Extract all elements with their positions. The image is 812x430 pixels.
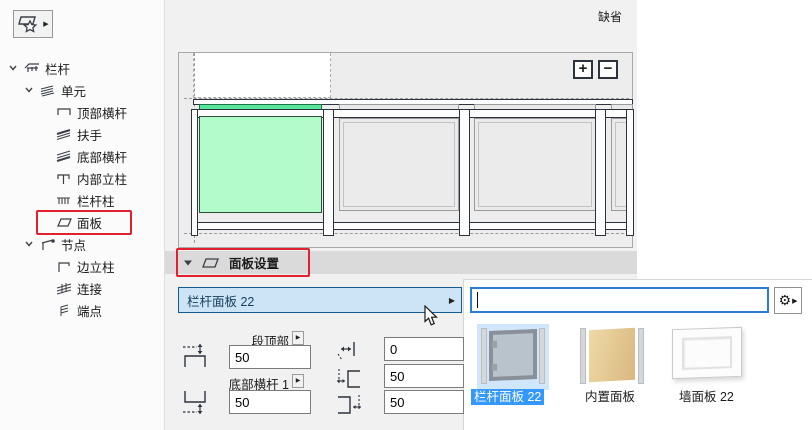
gallery-item-label[interactable]: 内置面板 [585,389,635,405]
settings-gear-button[interactable]: ⚙ ▶ [774,287,802,314]
thumb-post [580,328,586,384]
collapse-arrow-icon [183,259,193,267]
tree-item-connection[interactable]: 连接 [0,277,164,299]
panel-star-icon [17,14,41,34]
favorites-flyout-arrow-icon: ▶ [43,20,48,28]
tree-item-label: 单元 [61,81,86,100]
gap-right-input[interactable] [384,390,464,414]
gallery-item-wall-panel[interactable] [672,326,744,386]
tree-item-label: 端点 [77,301,102,320]
mouse-cursor [424,305,439,327]
offset-from-start-icon [336,340,360,364]
railing-structure-tree: 栏杆 单元 顶部横杆 扶手 底部横杆 内部立柱 栏杆柱 [0,57,164,321]
preview-panel[interactable] [339,118,459,211]
tree-item-baluster[interactable]: 栏杆柱 [0,189,164,211]
tree-item-endpoint[interactable]: 端点 [0,299,164,321]
zoom-out-button[interactable]: − [598,60,618,79]
tree-item-label: 连接 [77,279,102,298]
panel-settings-section-header[interactable]: 面板设置 [165,251,637,274]
tree-item-handrail[interactable]: 扶手 [0,123,164,145]
panel-type-dropdown-value: 栏杆面板 22 [187,291,449,310]
flyout-arrow-icon: ▶ [449,296,455,305]
connection-icon [56,282,73,295]
preview-selected-segment-region [193,53,331,98]
top-offset-icon [181,343,209,370]
preview-post [459,109,470,236]
segment-top-input[interactable] [229,345,311,369]
chevron-down-icon [24,85,34,95]
bottom-offset-icon [181,389,209,416]
tree-item-unit[interactable]: 单元 [0,79,164,101]
tree-item-label: 节点 [61,235,86,254]
preview-selected-panel[interactable] [199,116,322,213]
gap-right-icon [336,393,362,417]
default-status-label: 缺省 [598,8,634,25]
handrail-icon [56,128,73,141]
tree-item-label: 底部横杆 [77,147,127,166]
panel-type-dropdown[interactable]: 栏杆面板 22 ▶ [178,287,462,313]
wood-panel-thumbnail [589,328,635,382]
tree-item-label: 边立柱 [77,257,115,276]
baluster-icon [56,194,73,207]
section-title: 面板设置 [229,253,279,272]
tree-item-label: 顶部横杆 [77,103,127,122]
preview-panel[interactable] [474,118,596,211]
tree-item-node[interactable]: 节点 [0,233,164,255]
gallery-item-label[interactable]: 栏杆面板 22 [471,389,544,405]
text-caret [477,292,478,308]
preview-post [323,109,334,236]
bottom-rail-icon [56,150,73,163]
panel-icon [201,257,221,269]
node-icon [40,238,57,251]
chevron-down-icon [8,63,18,73]
tree-item-edge-post[interactable]: 边立柱 [0,255,164,277]
flyout-arrow-icon: ▶ [792,297,797,305]
gap-left-input[interactable] [384,364,464,388]
segment-top-flyout-button[interactable]: ▶ [292,331,304,345]
gallery-item-railing-panel[interactable] [481,326,545,386]
tree-item-railing[interactable]: 栏杆 [0,57,164,79]
preview-bottom-rail [191,222,633,230]
favorites-button[interactable]: ▶ [13,10,53,38]
glass-panel-thumbnail [489,329,537,381]
panel-icon [56,216,73,229]
endpoint-icon [56,304,73,317]
tree-item-bottom-rail[interactable]: 底部横杆 [0,145,164,167]
tree-item-top-rail[interactable]: 顶部横杆 [0,101,164,123]
tree-item-label: 栏杆 [45,59,70,78]
zoom-in-button[interactable]: + [573,60,593,79]
thumb-post [539,328,545,384]
thumb-post [638,328,644,384]
tree-item-panel[interactable]: 面板 [0,211,164,233]
preview-post [626,109,634,236]
gallery-item-label[interactable]: 墙面板 22 [679,389,734,405]
railing-settings-dialog: ▶ 缺省 栏杆 单元 顶部横杆 扶手 底部横杆 内部立柱 [0,0,812,430]
gap-left-icon [336,367,362,391]
tree-item-label: 面板 [77,213,102,232]
inner-post-icon [56,172,73,185]
preview-guide-line [184,233,629,234]
unit-icon [40,84,57,97]
preview-post [595,109,606,236]
preview-post [191,109,198,236]
bottom-rail-input[interactable] [229,390,311,414]
wall-panel-thumbnail [672,327,742,379]
tree-item-label: 栏杆柱 [77,191,115,210]
gear-icon: ⚙ [779,292,792,309]
railing-icon [24,62,41,75]
tree-item-inner-post[interactable]: 内部立柱 [0,167,164,189]
edge-post-icon [56,260,73,273]
bottom-rail-flyout-button[interactable]: ▶ [292,374,304,388]
chevron-down-icon [24,239,34,249]
railing-preview-canvas[interactable]: + − [178,52,633,248]
offset-input[interactable] [384,337,464,361]
tree-item-label: 扶手 [77,125,102,144]
tree-item-label: 内部立柱 [77,169,127,188]
top-rail-icon [56,106,73,119]
search-input[interactable] [470,287,769,313]
gallery-item-builtin-panel[interactable] [580,326,644,386]
thumb-post [481,328,487,384]
